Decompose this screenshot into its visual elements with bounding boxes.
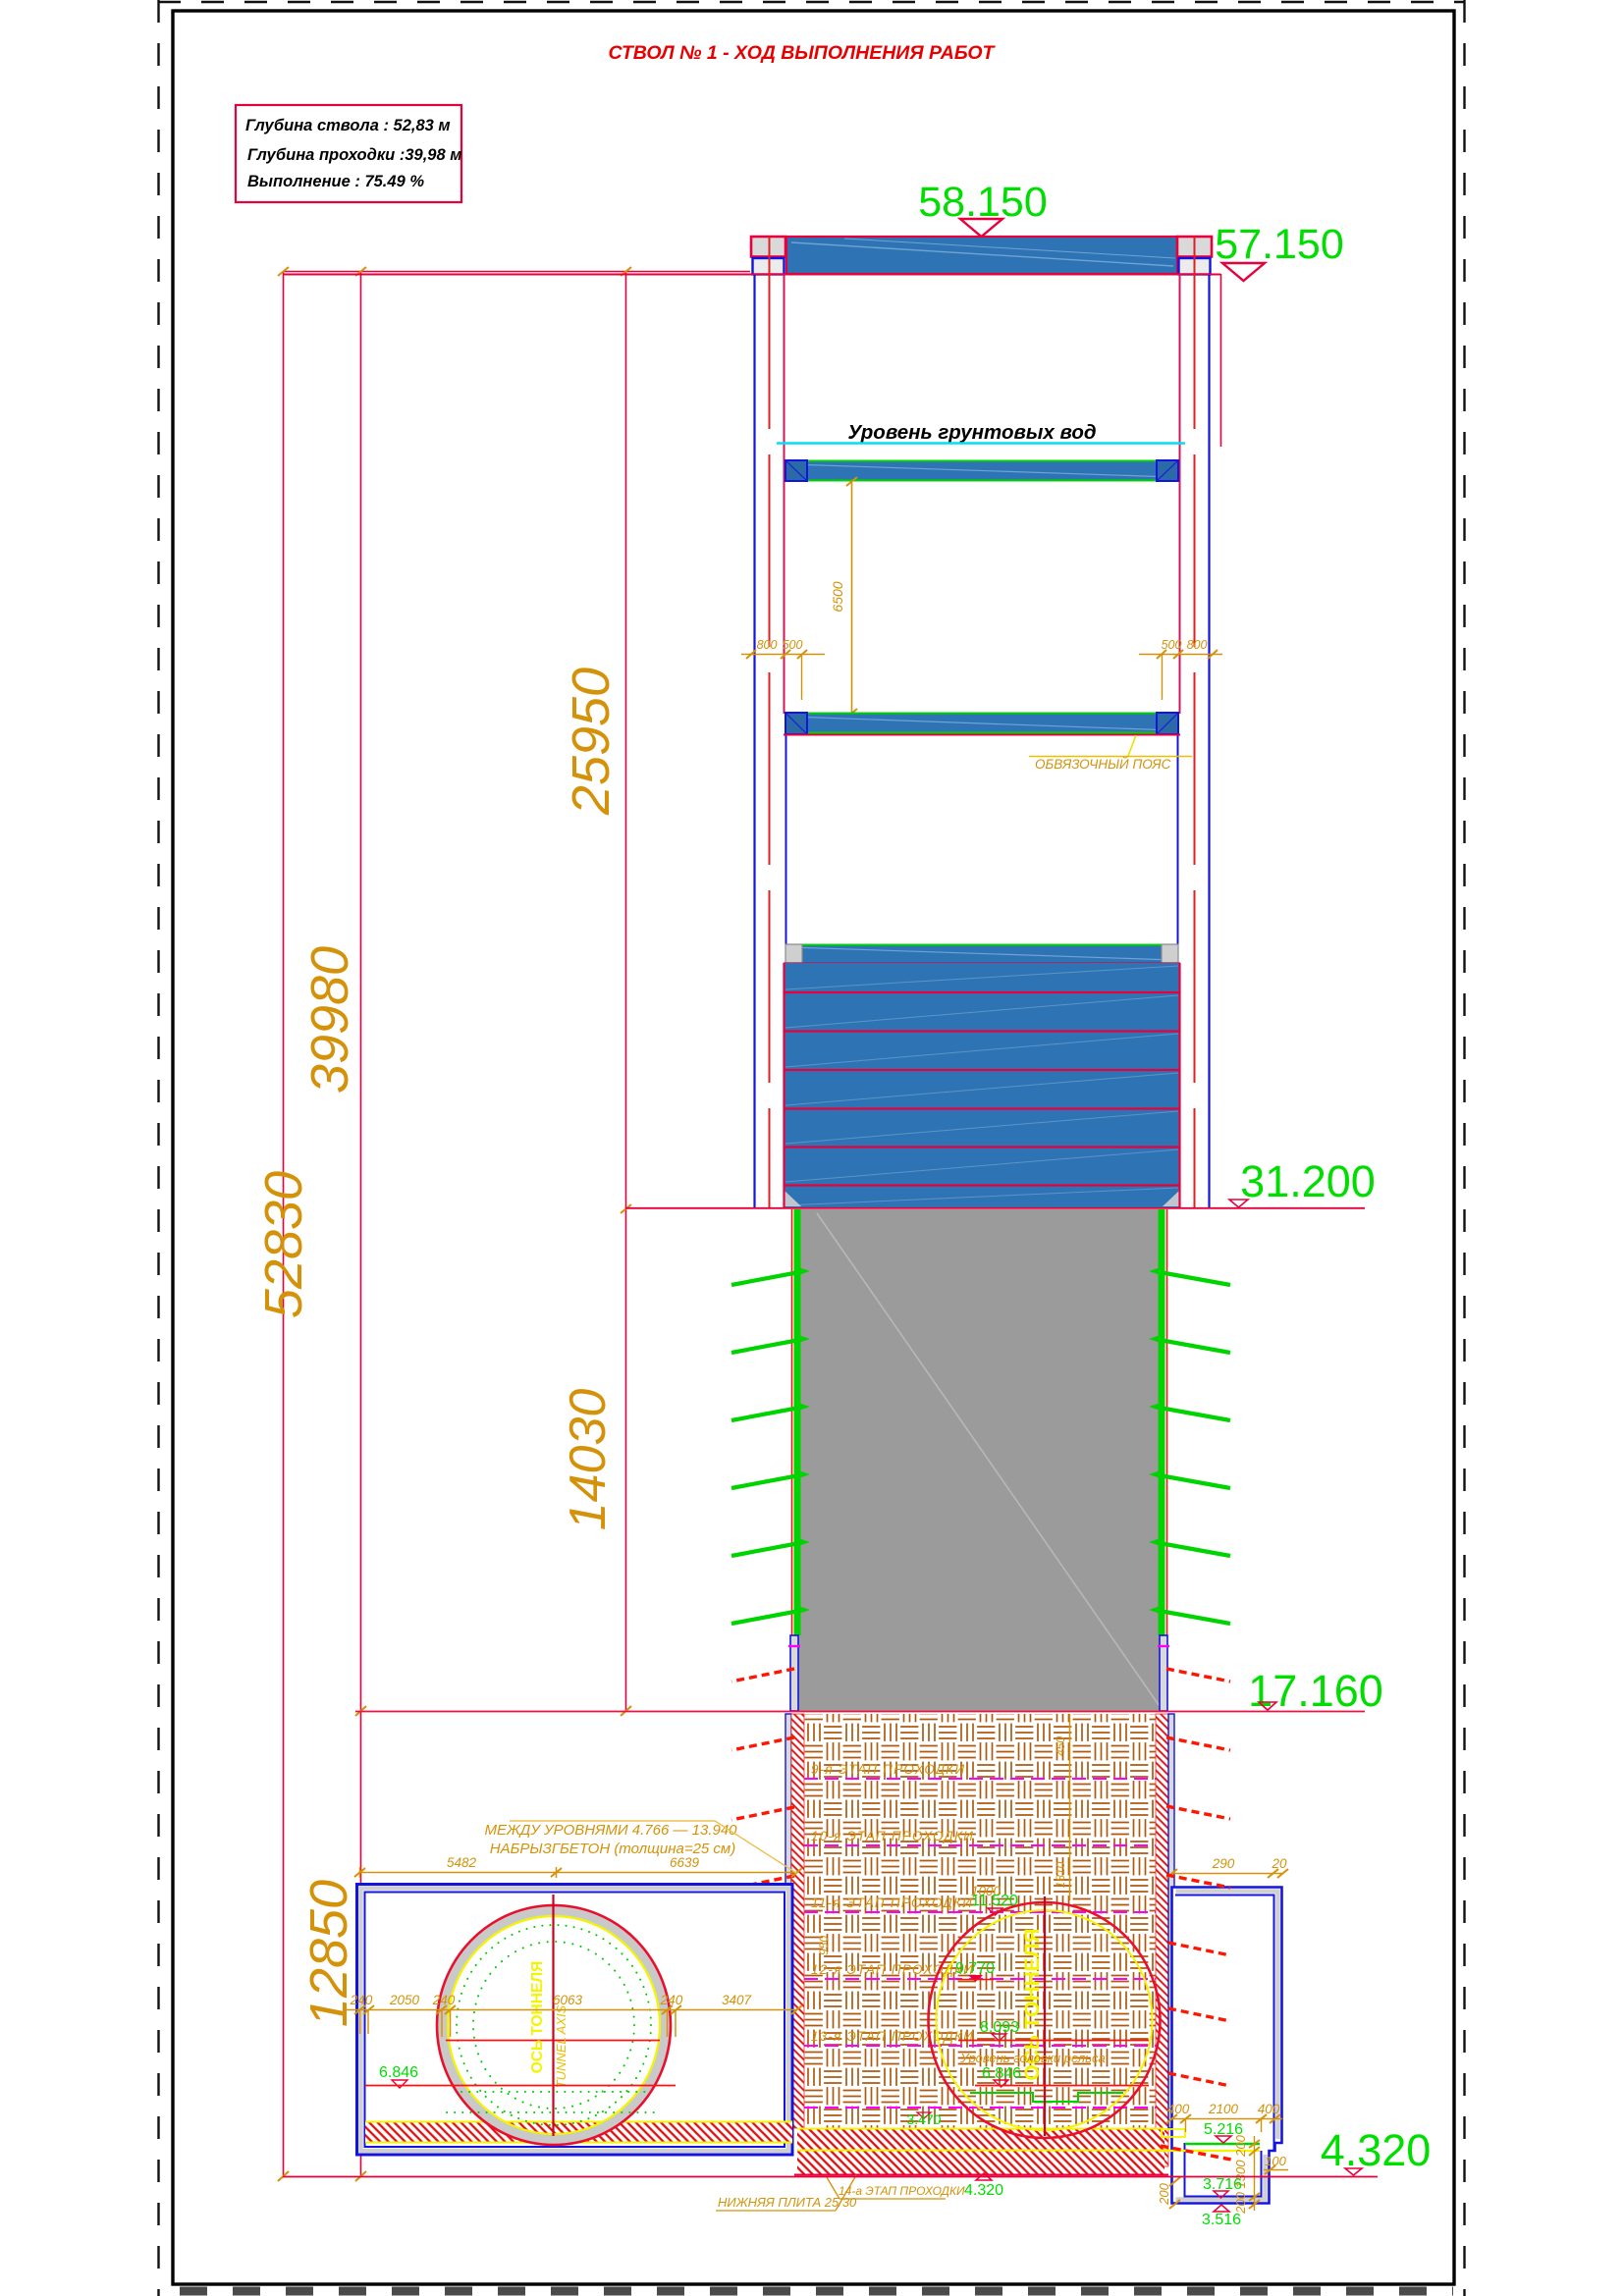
svg-text:4.320: 4.320 <box>1321 2125 1432 2175</box>
svg-text:240: 240 <box>432 1993 456 2007</box>
svg-text:25950: 25950 <box>562 667 621 816</box>
svg-text:39980: 39980 <box>300 946 359 1094</box>
svg-text:500: 500 <box>783 638 803 652</box>
svg-text:400: 400 <box>1258 2102 1280 2116</box>
svg-text:9-я ЭТАП ПРОХОДКИ: 9-я ЭТАП ПРОХОДКИ <box>811 1762 965 1777</box>
svg-text:20: 20 <box>1271 1856 1287 1871</box>
svg-text:TUNNEL AXIS: TUNNEL AXIS <box>554 2004 568 2088</box>
svg-text:14030: 14030 <box>560 1389 617 1531</box>
svg-text:НАБРЫЗГБЕТОН (толщина=25 см): НАБРЫЗГБЕТОН (толщина=25 см) <box>490 1841 735 1857</box>
svg-text:240: 240 <box>350 1993 373 2007</box>
svg-text:400: 400 <box>1167 2102 1190 2116</box>
svg-text:Глубина проходки :39,98 м: Глубина проходки :39,98 м <box>247 146 461 164</box>
svg-text:12-я ЭТАП ПРОХОДКИ: 12-я ЭТАП ПРОХОДКИ <box>811 1962 974 1977</box>
svg-text:2050: 2050 <box>389 1993 420 2007</box>
svg-text:11-я ЭТАП ПРОХОДКИ: 11-я ЭТАП ПРОХОДКИ <box>811 1896 973 1910</box>
svg-text:Уровень головки рельса: Уровень головки рельса <box>959 2051 1105 2065</box>
svg-text:3.516: 3.516 <box>1202 2212 1241 2228</box>
svg-text:3407: 3407 <box>722 1993 752 2007</box>
svg-text:800: 800 <box>1187 638 1208 652</box>
svg-text:СТВОЛ № 1 - ХОД ВЫПОЛНЕНИЯ РАБ: СТВОЛ № 1 - ХОД ВЫПОЛНЕНИЯ РАБОТ <box>609 42 997 64</box>
svg-text:3.470: 3.470 <box>906 2111 941 2127</box>
svg-text:6639: 6639 <box>670 1855 700 1870</box>
svg-text:200: 200 <box>1157 2182 1171 2205</box>
svg-text:ОБВЯЗОЧНЫЙ ПОЯС: ОБВЯЗОЧНЫЙ ПОЯС <box>1035 756 1171 772</box>
svg-text:НИЖНЯЯ ПЛИТА 25/30: НИЖНЯЯ ПЛИТА 25/30 <box>718 2195 857 2210</box>
svg-text:500: 500 <box>1162 638 1182 652</box>
svg-text:Уровень грунтовых вод: Уровень грунтовых вод <box>847 421 1096 444</box>
svg-text:13-я ЭТАП ПРОХОДКИ: 13-я ЭТАП ПРОХОДКИ <box>811 2029 974 2044</box>
svg-text:1810: 1810 <box>1054 1861 1067 1888</box>
svg-text:ОСЬ ТОННЕЛЯ: ОСЬ ТОННЕЛЯ <box>529 1961 546 2074</box>
svg-text:6500: 6500 <box>830 581 845 612</box>
svg-text:450: 450 <box>1054 1736 1067 1756</box>
svg-text:4.320: 4.320 <box>964 2182 1003 2199</box>
svg-text:800: 800 <box>757 638 778 652</box>
svg-text:57.150: 57.150 <box>1215 221 1344 268</box>
svg-text:950: 950 <box>817 1936 831 1955</box>
svg-text:240: 240 <box>660 1993 683 2007</box>
svg-text:6063: 6063 <box>553 1993 583 2007</box>
svg-text:9.770: 9.770 <box>955 1960 995 1977</box>
svg-text:МЕЖДУ УРОВНЯМИ 4.766 — 13.94: МЕЖДУ УРОВНЯМИ 4.766 — 13.940 <box>484 1822 737 1839</box>
svg-text:Выполнение : 75.49 %: Выполнение : 75.49 % <box>247 173 424 190</box>
svg-text:6.846: 6.846 <box>379 2064 418 2081</box>
svg-text:290: 290 <box>1212 1856 1235 1871</box>
svg-text:31.200: 31.200 <box>1240 1156 1376 1206</box>
svg-text:5482: 5482 <box>447 1855 477 1870</box>
svg-text:10-я ЭТАП ПРОХОДКИ: 10-я ЭТАП ПРОХОДКИ <box>811 1829 974 1843</box>
svg-text:2100: 2100 <box>1208 2102 1239 2116</box>
svg-text:52830: 52830 <box>254 1171 313 1318</box>
svg-text:Глубина ствола : 52,83 м: Глубина ствола : 52,83 м <box>245 117 451 134</box>
svg-text:14-а ЭТАП ПРОХОДКИ: 14-а ЭТАП ПРОХОДКИ <box>839 2184 965 2198</box>
